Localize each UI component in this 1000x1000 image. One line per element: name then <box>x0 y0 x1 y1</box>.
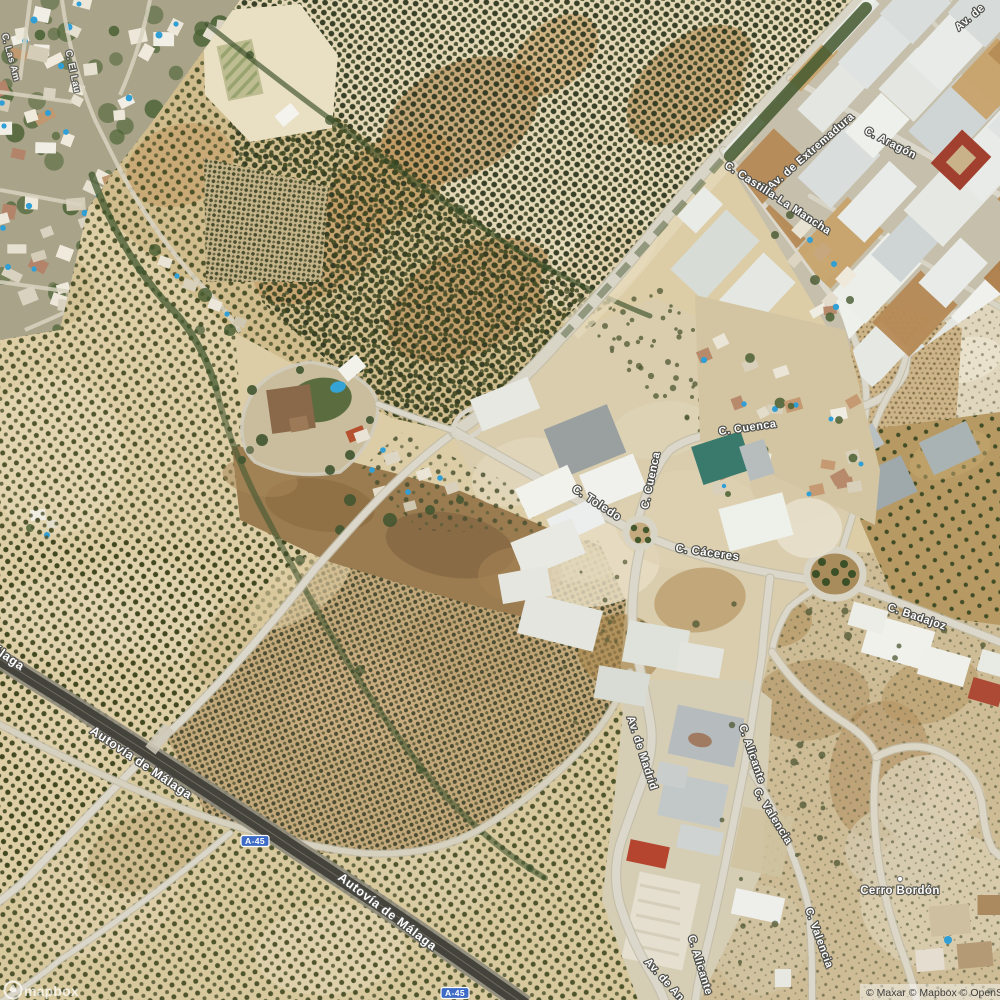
svg-text:© Maxar © Mapbox © OpenStreetM: © Maxar © Mapbox © OpenStreetM <box>866 987 1000 999</box>
svg-text:mapbox: mapbox <box>24 983 79 999</box>
svg-text:A-45: A-45 <box>245 836 265 846</box>
svg-text:Cerro Bordón: Cerro Bordón <box>860 885 940 897</box>
svg-text:A-45: A-45 <box>445 988 465 998</box>
